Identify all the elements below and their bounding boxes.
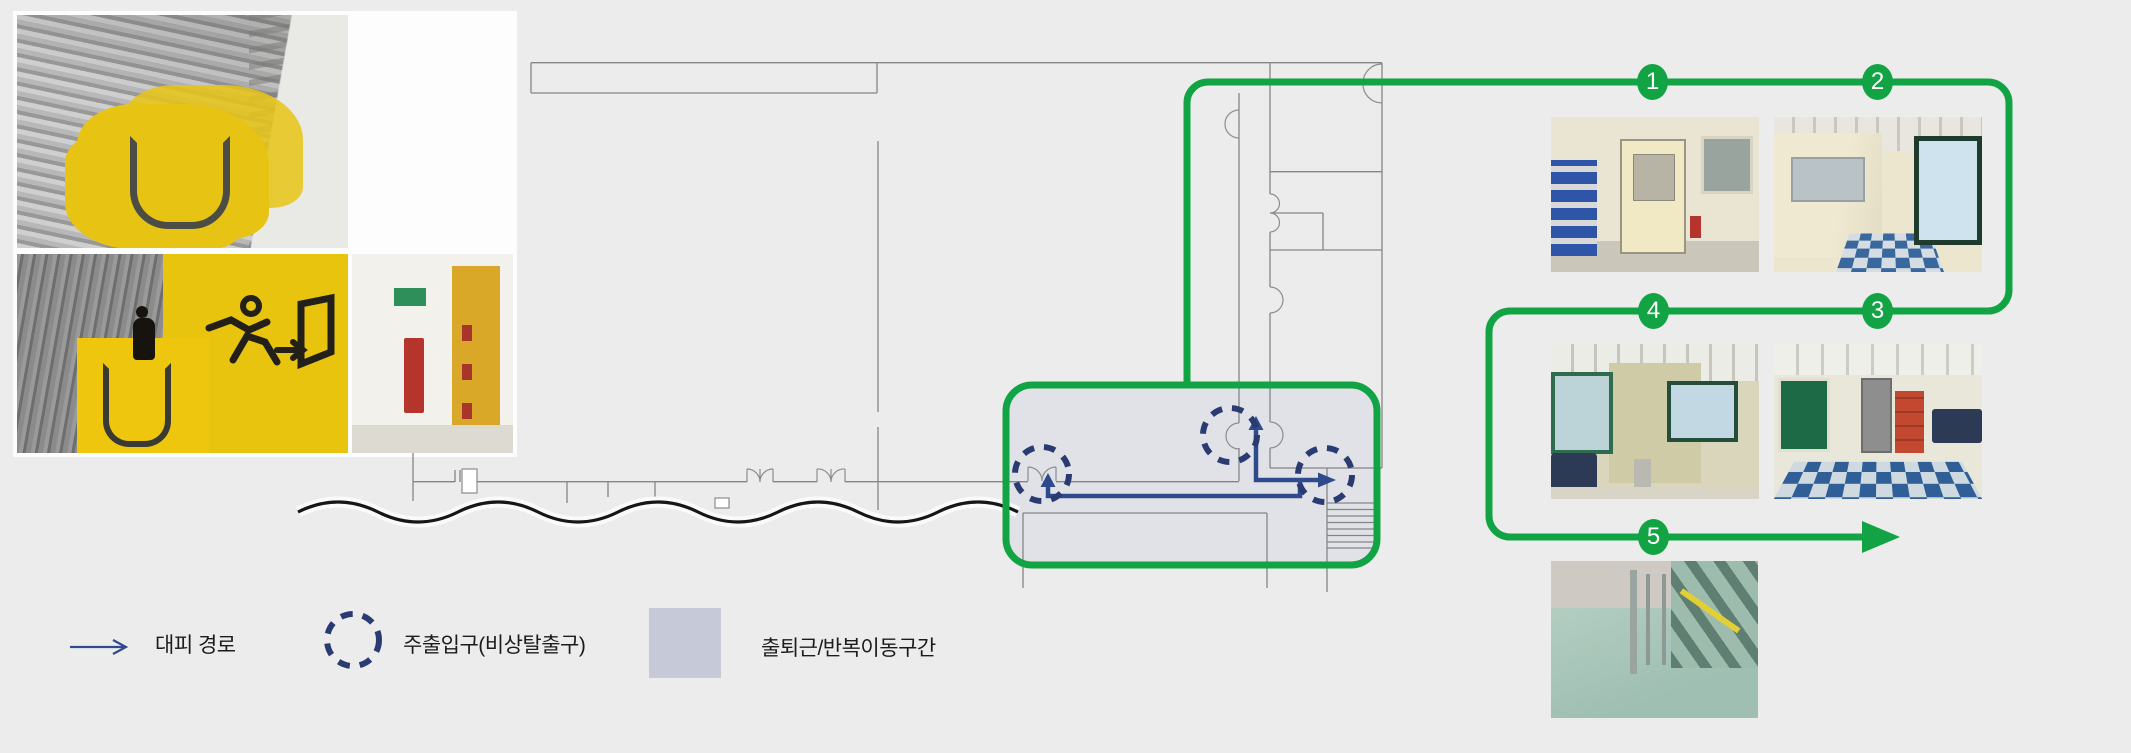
route-marker-1: 1 (1637, 64, 1668, 100)
person-silhouette-body (133, 318, 155, 360)
interior-window (1701, 136, 1753, 195)
running-man-exit-icon (189, 290, 339, 380)
red-hydrant-station (404, 338, 425, 414)
dark-guide-path (130, 136, 230, 229)
route-arrow-icon (70, 640, 126, 654)
green-route-arrowhead (1862, 521, 1900, 553)
blue-shelf (1551, 160, 1597, 256)
blank-patch (348, 15, 513, 249)
yellow-equipment-panel (452, 266, 500, 441)
wall-board (1791, 157, 1866, 201)
route-marker-3: 3 (1862, 293, 1893, 329)
checkpoint-4-rest-area-photo (1551, 344, 1759, 499)
interior-door (1620, 139, 1686, 255)
legend-label-commute-zone: 출퇴근/반복이동구간 (761, 632, 936, 662)
checkered-floor (1774, 462, 1982, 499)
route-marker-5: 5 (1638, 519, 1669, 555)
dark-guide-track (103, 363, 171, 447)
checkpoint-2-corridor-photo (1774, 117, 1982, 272)
stadium-stairs-person-photo (17, 254, 348, 453)
window-left (1551, 372, 1613, 454)
fire-extinguisher-wall-photo (352, 254, 513, 453)
zone-square-icon (649, 608, 721, 678)
checkpoint-1-door-photo (1551, 117, 1759, 272)
evacuation-route-diagram: 대피 경로 주출입구(비상탈출구) 출퇴근/반복이동구간 1 2 3 4 5 (0, 0, 2131, 753)
dashed-circle-icon (327, 614, 379, 666)
exit-sign (394, 288, 426, 306)
railing-post (1630, 570, 1637, 674)
corridor-window (1914, 136, 1982, 245)
extinguisher (1690, 216, 1700, 238)
back-door (1861, 378, 1892, 453)
window-right (1667, 381, 1737, 442)
green-notice-board (1778, 378, 1830, 452)
wave-break-line (298, 502, 1018, 522)
sofa (1932, 409, 1982, 443)
floor-plan-walls (413, 63, 1382, 592)
checkpoint-3-lounge-photo (1774, 344, 1982, 499)
red-lockers (1895, 391, 1924, 453)
floor (352, 425, 513, 453)
legend-label-evacuation-route: 대피 경로 (155, 629, 236, 659)
legend-label-main-exit: 주출입구(비상탈출구) (403, 629, 585, 659)
person-silhouette-head (136, 306, 148, 318)
route-marker-4: 4 (1638, 293, 1669, 329)
route-marker-2: 2 (1862, 64, 1893, 100)
stadium-evacuation-path-photo (17, 15, 348, 248)
checkpoint-5-stairwell-photo (1551, 561, 1758, 718)
